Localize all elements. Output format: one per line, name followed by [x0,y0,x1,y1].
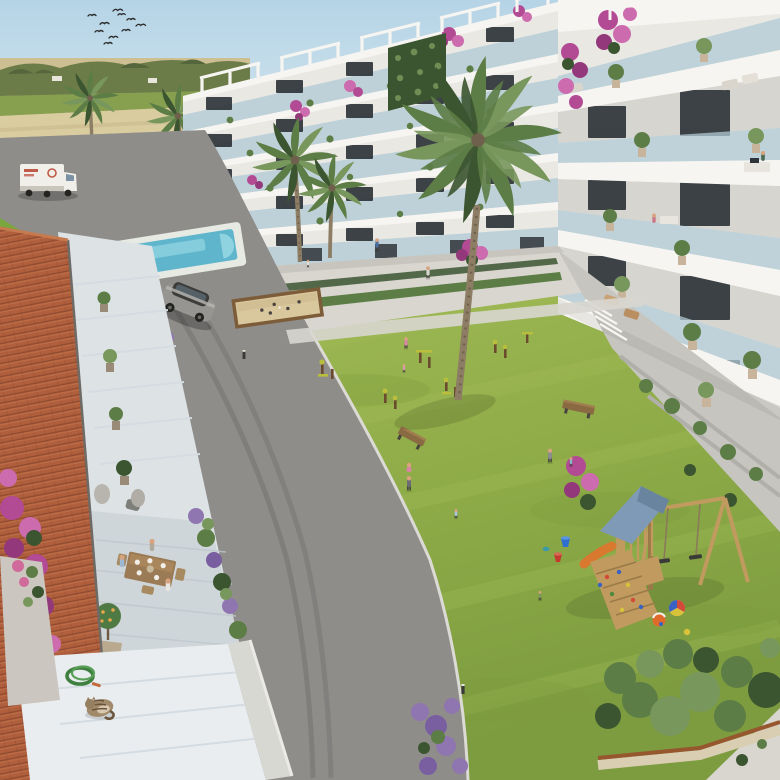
toy-ball [653,613,666,626]
bollard-light [461,684,464,694]
bollard-light [243,350,246,359]
small-ball [684,629,690,635]
beach-ball [669,600,685,616]
balcony-man-laptop [761,151,765,159]
diner-2 [149,539,154,549]
balcony-woman [652,214,656,222]
diner-1 [119,555,124,565]
rendering-stage [0,0,780,780]
courtyard-rendering-image [0,0,780,780]
diner-3 [165,578,170,589]
